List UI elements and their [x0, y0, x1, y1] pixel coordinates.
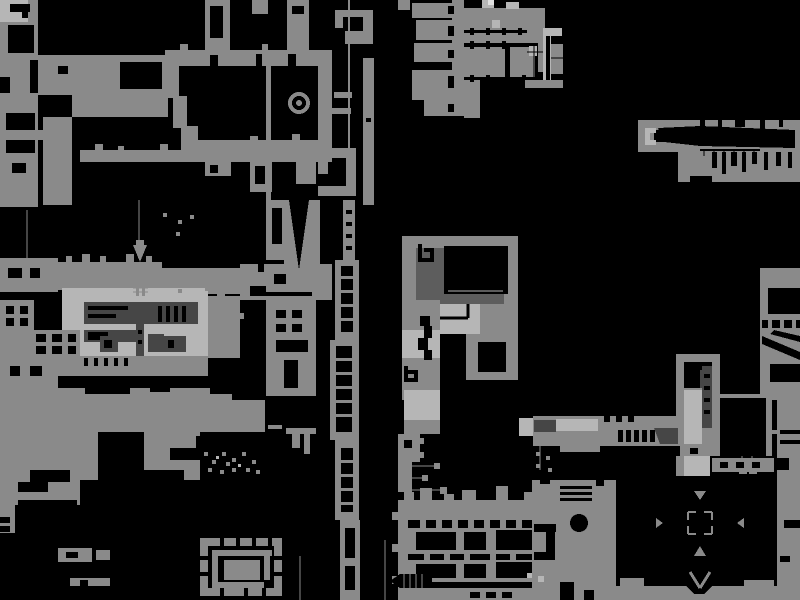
region-arena [616, 476, 784, 600]
region-foundation-band [0, 388, 265, 432]
region-left-column [0, 0, 43, 207]
region-bottom-right-terrain [532, 480, 616, 600]
game-screen [0, 0, 800, 600]
world-map-canvas[interactable] [0, 0, 800, 600]
region-rubble-field [200, 448, 265, 480]
